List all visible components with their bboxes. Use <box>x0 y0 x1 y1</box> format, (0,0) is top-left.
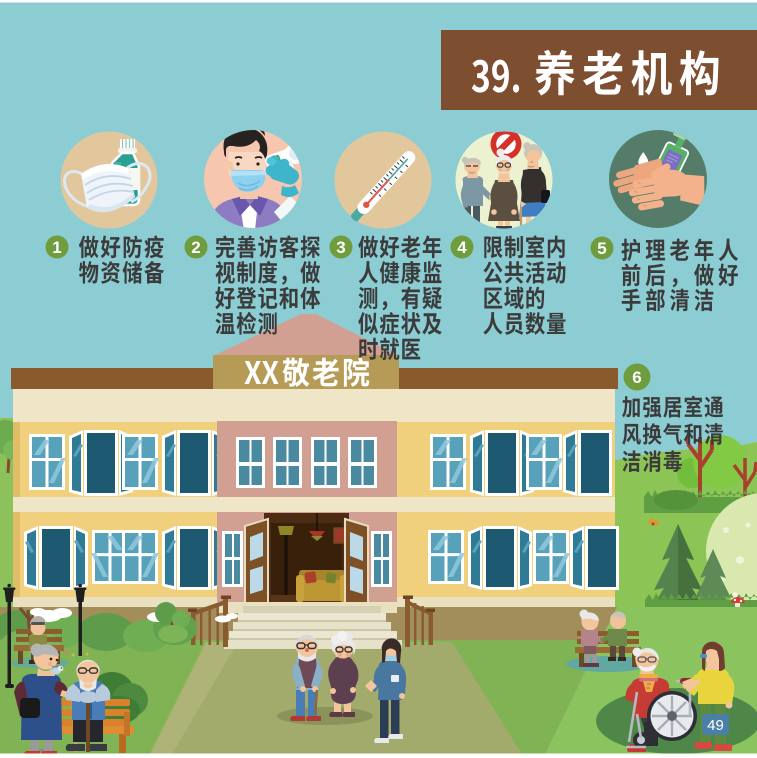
svg-text:49: 49 <box>707 717 724 734</box>
svg-text:2: 2 <box>191 238 200 257</box>
svg-text:6: 6 <box>632 368 641 387</box>
svg-text:4: 4 <box>457 238 467 257</box>
svg-text:1: 1 <box>52 238 61 257</box>
svg-text:5: 5 <box>597 239 606 258</box>
svg-text:3: 3 <box>336 238 345 257</box>
